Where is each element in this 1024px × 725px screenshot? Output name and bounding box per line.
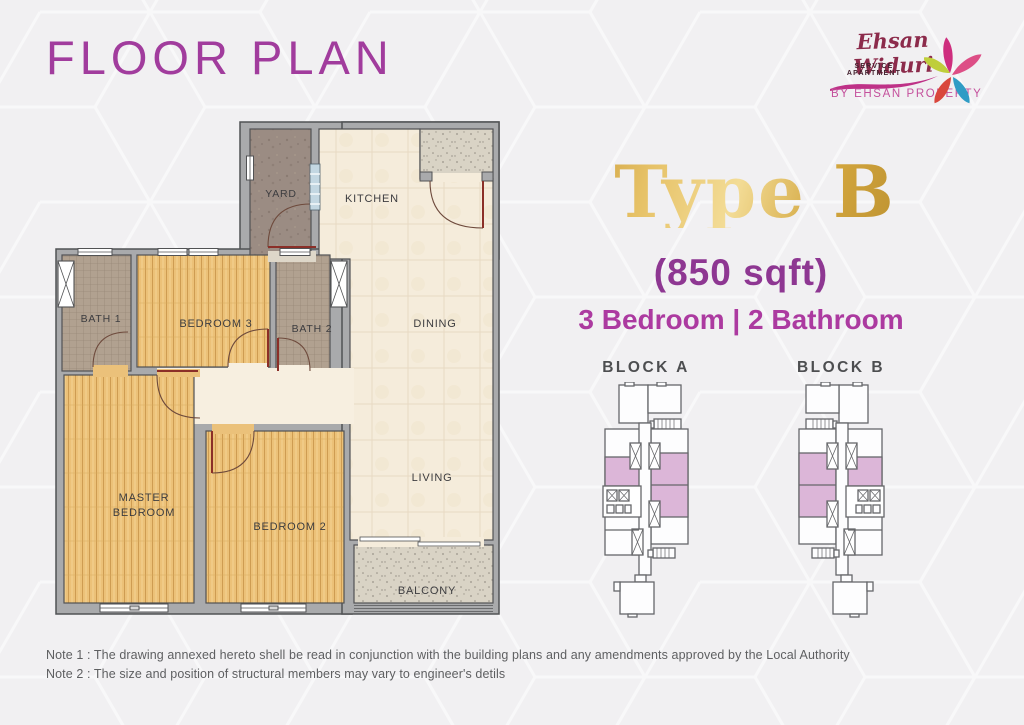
block-a-label: BLOCK A bbox=[571, 359, 721, 377]
room-label-dining: DINING bbox=[413, 318, 456, 330]
brochure-page: FLOOR PLAN Ehsan Widuri SERVICE APARTMEN… bbox=[0, 0, 1024, 725]
louvre-window bbox=[310, 164, 320, 210]
sliding-door bbox=[358, 537, 484, 547]
room-label-master-line1: MASTER bbox=[119, 492, 170, 504]
flower-logo-icon bbox=[924, 27, 984, 111]
notes-block: Note 1 : The drawing annexed hereto shel… bbox=[46, 646, 850, 685]
room-label-bath2: BATH 2 bbox=[292, 323, 333, 335]
room-label-living: LIVING bbox=[412, 472, 453, 484]
room-label-bedroom2: BEDROOM 2 bbox=[253, 521, 326, 533]
note-1: Note 1 : The drawing annexed hereto shel… bbox=[46, 646, 850, 665]
block-a-diagram bbox=[599, 382, 695, 618]
room-label-bedroom3: BEDROOM 3 bbox=[179, 318, 252, 330]
room-label-master-line2: BEDROOM bbox=[113, 507, 175, 519]
room-master-bedroom bbox=[64, 375, 194, 603]
room-bedroom3 bbox=[137, 255, 270, 367]
unit-config: 3 Bedroom | 2 Bathroom bbox=[516, 304, 966, 336]
block-b-diagram bbox=[792, 382, 888, 618]
unit-type-title: Type B bbox=[530, 156, 980, 228]
note-2: Note 2 : The size and position of struct… bbox=[46, 665, 850, 684]
floor-plan-drawing: YARD KITCHEN DINING LIVING BALCONY BATH … bbox=[48, 116, 508, 626]
block-b-label: BLOCK B bbox=[766, 359, 916, 377]
room-bath2 bbox=[276, 255, 330, 371]
room-label-balcony: BALCONY bbox=[398, 585, 456, 597]
room-label-bath1: BATH 1 bbox=[81, 313, 122, 325]
room-label-yard: YARD bbox=[265, 188, 297, 200]
page-title: FLOOR PLAN bbox=[46, 30, 394, 85]
unit-size: (850 sqft) bbox=[516, 252, 966, 294]
room-bedroom2 bbox=[206, 431, 344, 603]
room-label-kitchen: KITCHEN bbox=[345, 193, 399, 205]
